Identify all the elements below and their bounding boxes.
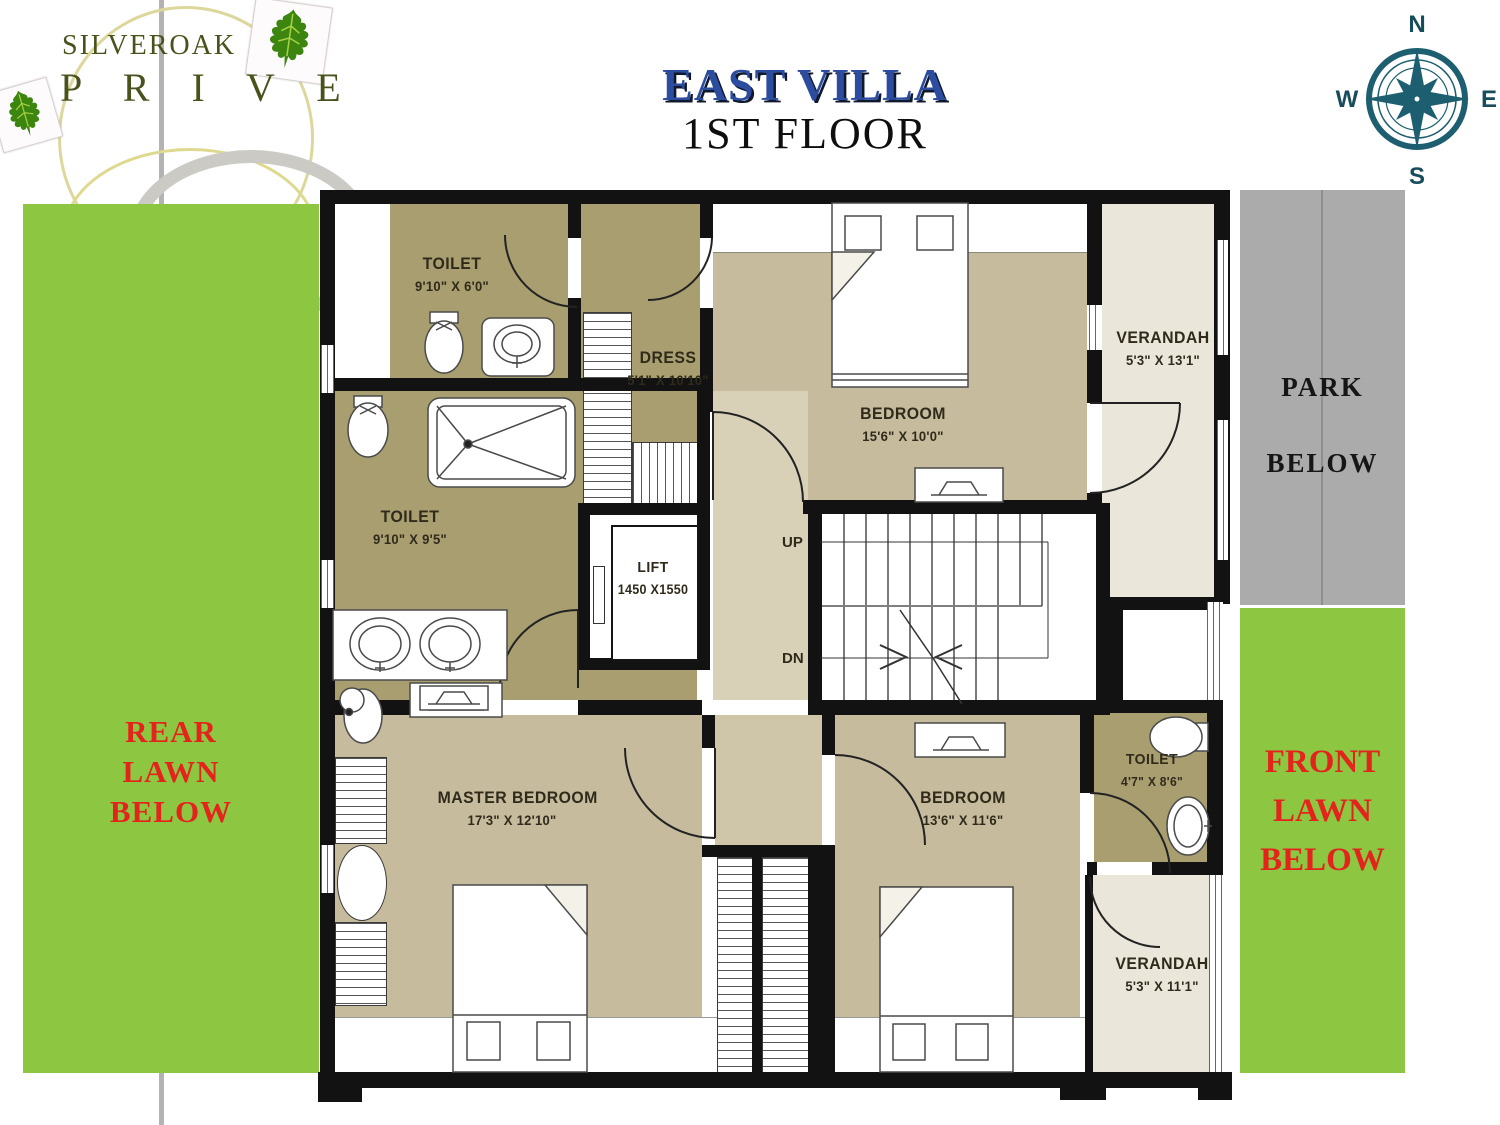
window bbox=[1207, 602, 1223, 700]
wall bbox=[822, 715, 835, 755]
bedroom-top-headwall bbox=[713, 204, 1087, 253]
floor-subtitle: 1ST FLOOR bbox=[640, 108, 970, 159]
room-label-toilet-mid: TOILET 9'10" X 9'5" bbox=[336, 505, 485, 549]
wall bbox=[1080, 700, 1214, 713]
wall bbox=[822, 845, 835, 1072]
wall bbox=[1080, 700, 1094, 793]
wall bbox=[808, 503, 822, 715]
wall bbox=[808, 700, 1110, 715]
corridor-lower bbox=[715, 715, 822, 857]
leaf-badge bbox=[0, 77, 63, 154]
front-lawn-label: FRONT LAWN BELOW bbox=[1240, 738, 1405, 885]
room-label-verandah-bottom: VERANDAH 5'3" X 11'1" bbox=[1092, 952, 1232, 996]
compass-rose-icon: N E S W bbox=[1335, 2, 1500, 197]
compass-east-label: E bbox=[1481, 86, 1497, 113]
wall bbox=[700, 190, 713, 238]
wall bbox=[578, 700, 702, 715]
master-round-table bbox=[337, 845, 387, 921]
wall bbox=[1087, 190, 1102, 305]
wall bbox=[702, 845, 822, 857]
wall bbox=[578, 503, 590, 670]
front-lawn-line: BELOW bbox=[1240, 836, 1405, 885]
window bbox=[321, 845, 334, 893]
wall bbox=[1207, 700, 1223, 875]
room-label-bedroom-top: BEDROOM 15'6" X 10'0" bbox=[829, 402, 978, 446]
dress-wardrobe bbox=[632, 442, 700, 510]
room-label-dress: DRESS 5'1" X 10'10" bbox=[594, 346, 743, 390]
column-foot bbox=[318, 1072, 362, 1102]
master-wardrobe bbox=[335, 757, 387, 844]
wall bbox=[320, 190, 335, 1087]
wall bbox=[1102, 597, 1214, 610]
window bbox=[1217, 420, 1228, 560]
wall bbox=[1087, 862, 1097, 875]
compass-north-label: N bbox=[1408, 11, 1425, 38]
floor-plan-page: SILVEROAK P R I V E EAST VILLA 1ST FLOOR… bbox=[0, 0, 1500, 1125]
rear-lawn-label: REAR LAWN BELOW bbox=[23, 712, 319, 832]
logo-sub-brand: P R I V E bbox=[60, 64, 357, 111]
stairs-down-label: DN bbox=[782, 650, 804, 667]
wall bbox=[568, 190, 581, 238]
room-label-bedroom-right: BEDROOM 13'6" X 11'6" bbox=[889, 786, 1038, 830]
rear-lawn-line: REAR bbox=[23, 712, 319, 752]
front-lawn-line: LAWN bbox=[1240, 787, 1405, 836]
front-lawn-line: FRONT bbox=[1240, 738, 1405, 787]
rear-lawn-line: LAWN bbox=[23, 752, 319, 792]
park-label-line: PARK bbox=[1240, 372, 1405, 403]
window bbox=[321, 560, 334, 608]
wall bbox=[1152, 862, 1214, 875]
window bbox=[321, 345, 334, 393]
room-label-toilet-top: TOILET 9'10" X 6'0" bbox=[378, 252, 527, 296]
room-label-verandah-top: VERANDAH 5'3" X 13'1" bbox=[1093, 326, 1233, 370]
wall bbox=[808, 845, 822, 1072]
wall bbox=[578, 503, 710, 515]
park-label-line: BELOW bbox=[1240, 448, 1405, 479]
master-wardrobe bbox=[335, 922, 387, 1006]
dress-wardrobe bbox=[583, 312, 632, 510]
wall bbox=[702, 715, 715, 748]
room-label-toilet-right: TOILET 4'7" X 8'6" bbox=[1096, 748, 1208, 792]
logo-brand: SILVEROAK bbox=[62, 30, 236, 62]
wall bbox=[1096, 602, 1123, 700]
room-verandah-top bbox=[1102, 204, 1214, 597]
staircase bbox=[822, 514, 1096, 700]
page-title: EAST VILLA bbox=[640, 58, 970, 111]
wall bbox=[803, 500, 1096, 514]
stairs-up-label: UP bbox=[782, 534, 803, 551]
rear-lawn-line: BELOW bbox=[23, 792, 319, 832]
room-label-master-bedroom: MASTER BEDROOM 17'3" X 12'10" bbox=[438, 786, 587, 830]
wall bbox=[752, 845, 762, 1073]
wall bbox=[1087, 493, 1102, 503]
column-foot bbox=[1060, 1072, 1106, 1100]
rear-lawn-area bbox=[23, 204, 319, 1073]
shaft-hatch bbox=[717, 857, 754, 1075]
building-notch bbox=[1123, 602, 1207, 700]
compass-west-label: W bbox=[1336, 86, 1359, 113]
shaft-hatch bbox=[762, 857, 810, 1075]
wall bbox=[320, 700, 500, 715]
compass-south-label: S bbox=[1409, 163, 1425, 190]
wall bbox=[568, 298, 581, 391]
room-label-lift: LIFT 1450 X1550 bbox=[602, 556, 704, 600]
bottom-furniture-band bbox=[335, 1017, 1087, 1073]
column-foot bbox=[1198, 1072, 1232, 1100]
oak-leaf-icon bbox=[0, 78, 62, 152]
